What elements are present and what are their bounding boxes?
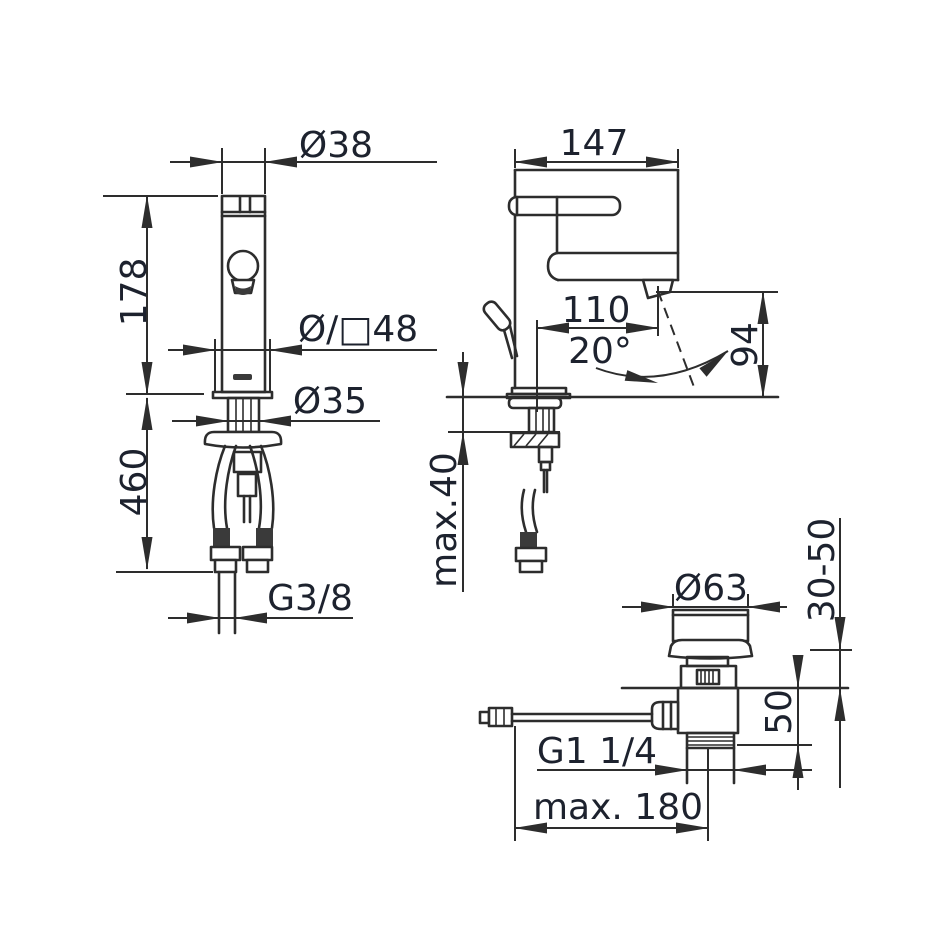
brand-logo: [233, 374, 252, 380]
dim-label-body-height: 178: [114, 258, 155, 327]
hose-connector-right: [243, 547, 272, 560]
mounting-flange-front: [205, 432, 281, 448]
dim-label-hose-thread: G3/8: [267, 578, 353, 619]
dim-label-drain-body-height: 50: [759, 689, 800, 735]
supply-hose-right: [261, 446, 273, 528]
hose-connector-side: [516, 548, 546, 561]
pull-rod-knob: [481, 299, 512, 333]
ball-joint: [652, 702, 678, 729]
waste-lower-body: [678, 688, 738, 733]
faucet-dimension-drawing: Ø38 178 460 Ø/□48 Ø35 G3/8: [0, 0, 950, 950]
dim-label-base-width: Ø/□48: [298, 309, 418, 350]
dim-label-spout-diameter: Ø38: [299, 125, 373, 166]
hose-connector-left: [211, 547, 240, 560]
dim-label-overall-depth: 147: [560, 123, 629, 164]
dim-label-plug-diameter: Ø63: [674, 568, 748, 609]
spout-outlet-front: [228, 251, 258, 281]
lever-rod-end: [489, 708, 512, 726]
dim-label-height-adjustment: 30-50: [802, 518, 843, 623]
dim-label-hose-length: 460: [114, 448, 155, 517]
dim-label-spout-angle: 20°: [568, 331, 632, 372]
dim-label-outlet-thread: G1 1/4: [537, 731, 657, 772]
lever-handle-side: [509, 197, 620, 215]
supply-hose-left: [213, 446, 225, 528]
dim-label-deck-thickness: max.40: [424, 452, 465, 588]
technical-drawing-page: Ø38 178 460 Ø/□48 Ø35 G3/8: [0, 0, 950, 950]
dim-label-spout-height: 94: [725, 322, 766, 368]
dim-label-spout-reach: 110: [562, 290, 631, 331]
side-view: 147 110 20° 94 max.40: [424, 123, 778, 592]
front-view: Ø38 178 460 Ø/□48 Ø35 G3/8: [103, 125, 437, 633]
dim-label-rod-length: max. 180: [533, 787, 703, 828]
dim-label-shank-diameter: Ø35: [293, 381, 367, 422]
